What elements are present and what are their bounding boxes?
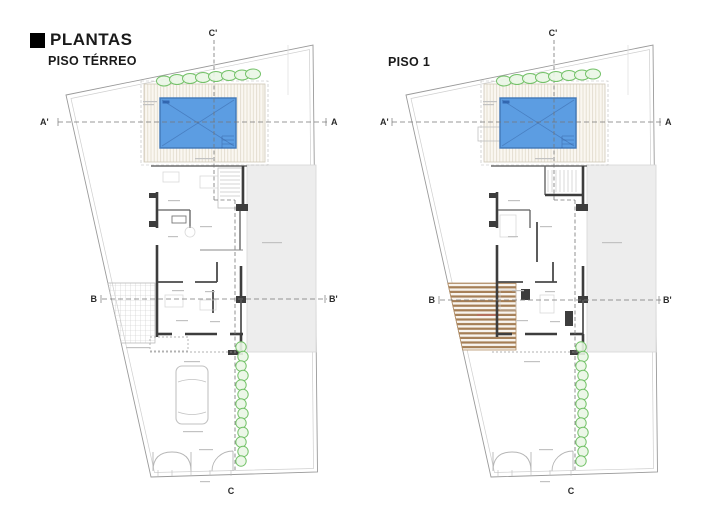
label-a-end: A: [665, 117, 672, 127]
entrance-gates: [153, 451, 233, 471]
pool: [160, 98, 236, 148]
grid-paving: [108, 283, 155, 343]
stair-treads: [548, 170, 576, 192]
label-a-start: A': [380, 117, 389, 127]
label-c-bottom: C: [568, 486, 575, 496]
label-c-bottom: C: [228, 486, 235, 496]
label-c-top: C': [209, 28, 218, 38]
floor-plan-drawing: A' A B B' C' C: [0, 0, 705, 528]
neighbor-building: [247, 165, 316, 352]
neighbor-building: [587, 165, 656, 352]
plan-piso-terreo: A' A B B' C' C: [40, 28, 338, 496]
pool: [500, 98, 576, 148]
drawing-sheet: PLANTAS PISO TÉRREO PISO 1: [0, 0, 705, 528]
furniture-outlines: [163, 172, 218, 310]
hedge-top: [157, 69, 261, 86]
label-b-end: B': [329, 294, 338, 304]
hedge-side: [236, 342, 248, 466]
label-a-start: A': [40, 117, 49, 127]
house-walls: [149, 166, 248, 355]
car: [176, 366, 208, 424]
entrance-gates: [493, 451, 573, 471]
label-b-start: B: [429, 295, 436, 305]
patio-dashed-outline: [150, 337, 243, 352]
label-b-start: B: [91, 294, 98, 304]
label-b-end: B': [663, 295, 672, 305]
label-a-end: A: [331, 117, 338, 127]
hedge-top: [497, 69, 601, 86]
wood-deck: [448, 283, 516, 350]
stair-treads: [220, 172, 240, 196]
hedge-side: [576, 342, 588, 466]
label-c-top: C': [549, 28, 558, 38]
plan-piso-1: A' A B B' C' C: [380, 28, 672, 496]
kitchen-island: [172, 216, 186, 223]
